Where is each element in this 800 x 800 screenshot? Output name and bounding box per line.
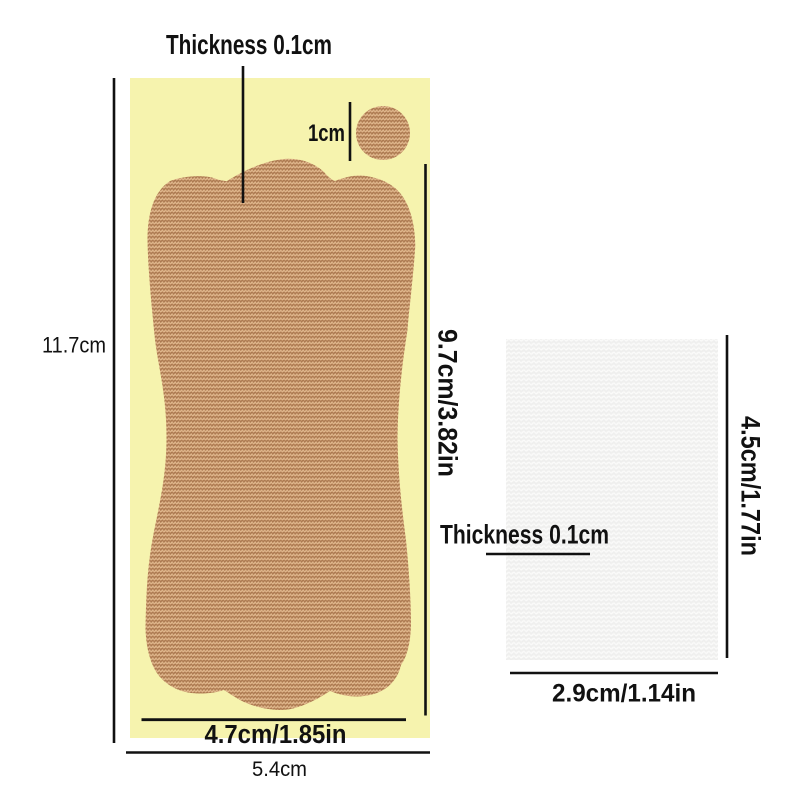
svg-text:4.7cm/1.85in: 4.7cm/1.85in xyxy=(205,721,347,749)
svg-text:11.7cm: 11.7cm xyxy=(42,333,106,358)
svg-text:9.7cm/3.82in: 9.7cm/3.82in xyxy=(433,329,463,477)
svg-text:Thickness 0.1cm: Thickness 0.1cm xyxy=(440,520,609,550)
svg-text:5.4cm: 5.4cm xyxy=(252,758,307,781)
svg-text:Thickness 0.1cm: Thickness 0.1cm xyxy=(166,29,332,60)
svg-text:2.9cm/1.14in: 2.9cm/1.14in xyxy=(552,680,696,708)
svg-text:1cm: 1cm xyxy=(308,120,345,147)
svg-text:4.5cm/1.77in: 4.5cm/1.77in xyxy=(736,416,766,556)
